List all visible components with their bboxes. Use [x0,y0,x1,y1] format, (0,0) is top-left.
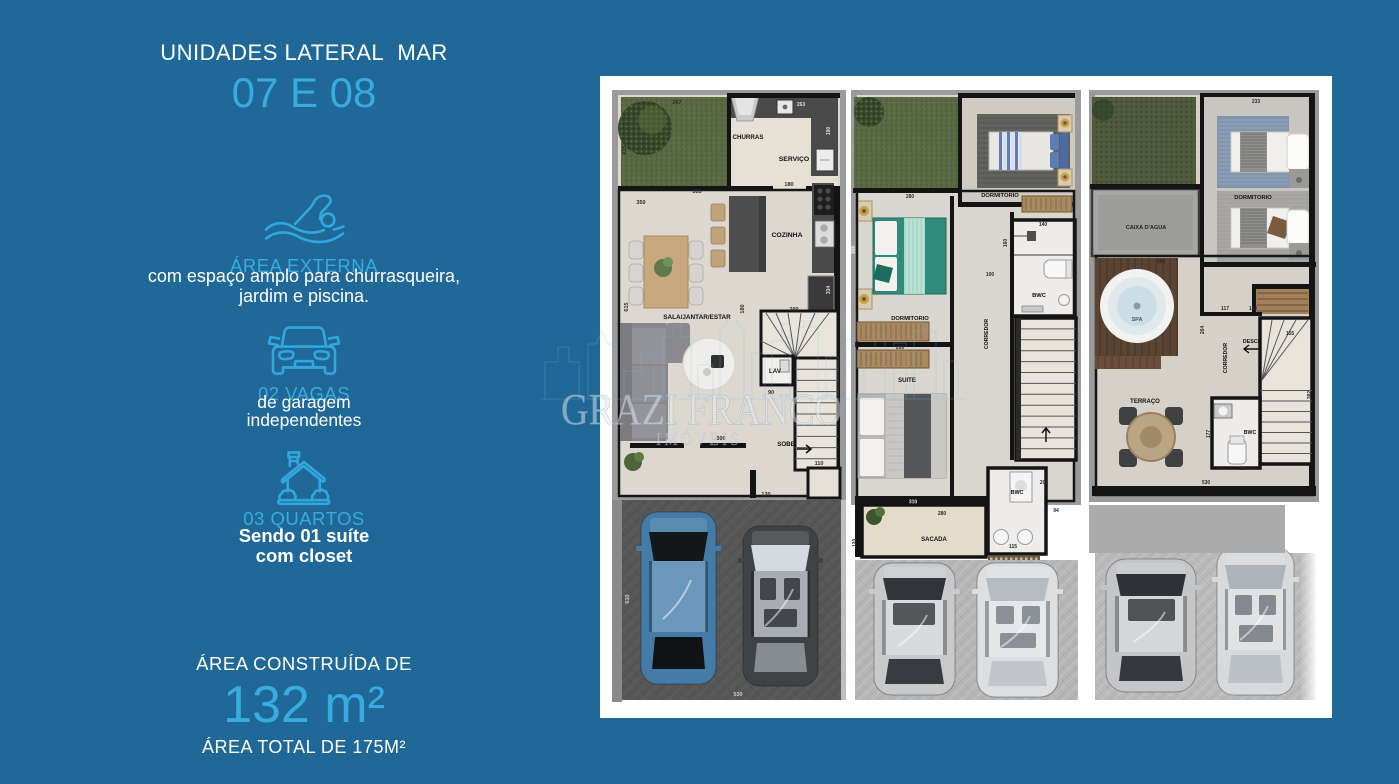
svg-text:COZINHA: COZINHA [772,232,803,239]
svg-text:CORREDOR: CORREDOR [1223,343,1229,374]
svg-text:180: 180 [784,182,793,188]
svg-text:SERVIÇO: SERVIÇO [779,156,809,163]
svg-text:190: 190 [826,127,832,136]
svg-text:DORMITORIO: DORMITORIO [981,193,1019,199]
svg-text:CORREDOR: CORREDOR [984,319,990,350]
svg-text:CHURRAS: CHURRAS [733,134,764,141]
svg-text:100: 100 [986,272,995,278]
svg-text:382: 382 [1307,391,1313,400]
svg-text:350: 350 [636,200,645,206]
svg-text:110: 110 [815,461,824,467]
svg-text:140: 140 [1039,222,1048,228]
svg-text:BWC: BWC [1011,490,1024,496]
svg-text:155: 155 [1286,331,1295,337]
svg-text:280: 280 [938,511,947,517]
svg-text:SPA: SPA [1131,317,1142,323]
svg-text:115: 115 [1009,544,1017,550]
svg-text:SACADA: SACADA [921,537,947,543]
svg-text:DORMITORIO: DORMITORIO [1234,195,1272,201]
svg-text:113: 113 [1249,306,1257,312]
svg-text:334: 334 [826,286,832,295]
svg-text:630: 630 [625,594,631,603]
svg-text:263: 263 [797,102,806,108]
svg-text:160: 160 [1003,239,1009,248]
svg-text:TERRAÇO: TERRAÇO [1130,399,1160,405]
svg-text:205: 205 [1040,480,1049,486]
svg-text:CAIXA D'AGUA: CAIXA D'AGUA [1126,225,1167,231]
svg-text:200: 200 [789,307,798,313]
svg-text:267: 267 [672,100,681,106]
svg-text:280: 280 [906,194,915,200]
svg-text:94: 94 [1053,508,1059,514]
svg-text:235: 235 [622,145,628,154]
svg-text:530: 530 [1202,480,1211,486]
svg-text:120: 120 [852,539,858,548]
svg-text:IMÓVEIS: IMÓVEIS [656,428,742,449]
svg-text:260: 260 [1157,259,1166,265]
svg-text:530: 530 [733,692,742,698]
svg-text:615: 615 [624,302,630,311]
svg-text:117: 117 [1221,306,1229,312]
svg-text:120: 120 [761,492,770,498]
svg-text:180: 180 [740,304,746,313]
svg-text:GRAZI FRANCO: GRAZI FRANCO [561,385,842,434]
svg-text:233: 233 [1252,99,1261,105]
svg-text:BWC: BWC [1032,293,1047,299]
svg-text:335: 335 [692,189,701,195]
svg-text:264: 264 [1200,326,1206,335]
svg-text:100: 100 [1239,466,1247,472]
svg-text:177: 177 [1206,430,1212,439]
svg-text:BWC: BWC [1244,430,1257,436]
